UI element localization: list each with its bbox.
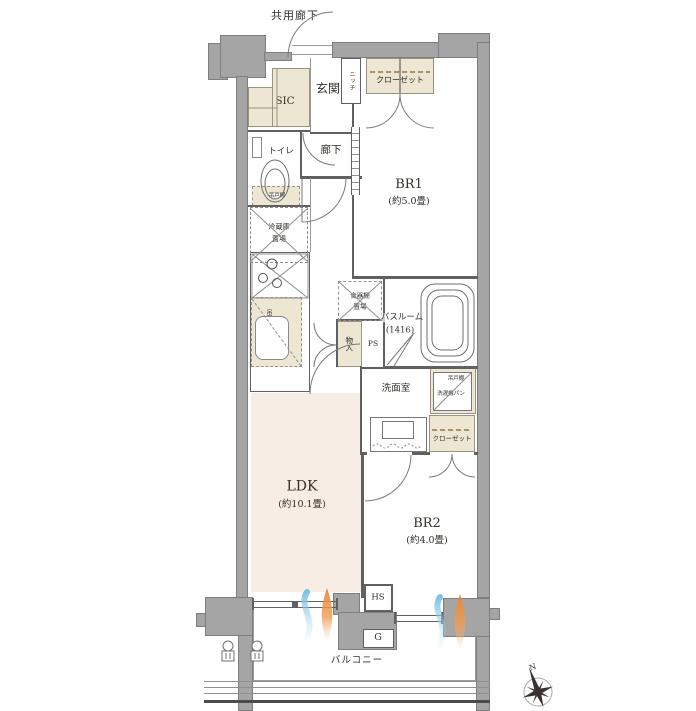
step-entrance <box>310 132 352 134</box>
br2-window-sash-bottom <box>395 621 443 622</box>
balcony-rail-1 <box>204 681 490 682</box>
hallway-label: 廊下 <box>321 145 342 157</box>
br2-window-sash-top <box>395 615 443 616</box>
compass-circle <box>520 674 556 710</box>
toilet-label: トイレ <box>268 147 294 156</box>
ps-label: PS <box>368 340 378 348</box>
toilet-cabinet-label: 吊戸棚 <box>269 193 286 199</box>
wall-bottom-left-arm <box>196 613 206 627</box>
bath-folding-door <box>387 333 414 366</box>
bathroom-name-label: バスルーム <box>381 313 423 322</box>
wall-bottom-left-pillar <box>205 597 253 636</box>
sic-label: SIC <box>275 96 294 108</box>
bathtub-outer <box>421 284 474 362</box>
wall-storage-west <box>336 319 338 367</box>
ldk-window-mullion <box>292 602 298 607</box>
niche-label: ニッチ <box>348 71 354 92</box>
bathtub-mid <box>427 290 468 356</box>
wall-top-left-strip <box>264 52 292 61</box>
dish-cabinet-box <box>338 281 382 321</box>
wall-br2-north-a <box>362 452 367 455</box>
balcony-rail-base <box>204 700 490 703</box>
br2-name-label: BR2 <box>413 517 441 531</box>
wall-br1-south <box>352 276 478 279</box>
wall-br2-north-b <box>412 452 430 455</box>
wall-right <box>477 42 490 598</box>
storage-door-bottom-arc <box>314 345 336 367</box>
balcony-edge-bottom <box>253 680 476 681</box>
br2-window-jamb-left <box>394 612 396 624</box>
wall-bath-west <box>383 279 385 368</box>
br1-size-label: (約5.0畳) <box>388 197 430 207</box>
toilet-shelf <box>252 137 262 158</box>
faucet-body-1 <box>222 651 234 661</box>
balcony-rail-3 <box>204 693 490 694</box>
bathtub-inner <box>432 296 463 350</box>
wall-bottom-right-pillar <box>443 598 490 637</box>
hs-label: HS <box>371 593 384 602</box>
compass-north-label: N <box>528 663 538 674</box>
balcony-rail-2 <box>204 687 490 688</box>
hall-door-arc <box>302 178 346 222</box>
closet-br2-door-right-arc <box>452 454 475 477</box>
compass-needle-ns <box>526 666 546 708</box>
closet-br1-door-right-arc <box>400 94 434 128</box>
wall-washroom-west <box>360 368 362 455</box>
compass-needle-ew <box>522 684 554 701</box>
divider-corridor <box>310 178 311 252</box>
closet-br2-label: クローゼット <box>433 435 472 442</box>
fridge-label-1: 冷蔵庫 <box>269 224 290 232</box>
flame-icon <box>322 588 333 642</box>
wall-left <box>236 76 248 600</box>
dish-label-2: 置場 <box>354 303 367 310</box>
ldk-window-sash-bottom <box>252 607 338 608</box>
floor-plan: ニッチ クローゼット クローゼット 物入 PS 冷蔵庫 置場 食器棚 置場 吊戸… <box>0 0 696 711</box>
bathtub <box>421 284 474 362</box>
compass-diagonals <box>526 680 549 703</box>
br2-door-arc <box>365 455 411 501</box>
g-label: G <box>374 633 382 643</box>
entrance-label: 玄関 <box>316 82 340 95</box>
ldk-name-label: LDK <box>287 479 318 494</box>
br1-sliding-door <box>351 127 360 195</box>
wall-br2-west <box>361 452 364 598</box>
wash-cabinet-label: 吊戸棚 <box>448 376 465 382</box>
wall-br1-west-lower <box>352 195 354 278</box>
wall-br2-north-c <box>474 452 478 455</box>
vanity-mirror <box>382 421 414 439</box>
br2-window-jamb-right <box>441 612 443 624</box>
wall-toilet-east <box>300 130 302 178</box>
closet-br1-label: クローゼット <box>376 77 424 86</box>
wall-bottom-right-arm <box>489 608 500 620</box>
br2-size-label: (約4.0畳) <box>406 536 448 546</box>
sic-floor-step <box>248 87 273 127</box>
water-wave-icon <box>304 592 309 638</box>
dish-label-1: 食器棚 <box>350 292 370 299</box>
fridge-label-2: 置場 <box>272 236 286 244</box>
storage-door-top-arc <box>314 323 336 345</box>
common-corridor-label: 共用廊下 <box>271 10 319 22</box>
balcony-edge-left <box>253 610 254 681</box>
divider-sic-entrance <box>310 58 311 132</box>
balcony-edge-right <box>475 632 476 681</box>
storage-label: 物入 <box>345 337 353 352</box>
br1-name-label: BR1 <box>395 178 423 192</box>
bathroom-size-label: (1416) <box>386 326 414 335</box>
washroom-label: 洗面室 <box>382 384 411 394</box>
entrance-sill-1 <box>292 45 332 46</box>
ldk-window-jamb-right <box>336 598 338 610</box>
ldk-window-jamb-left <box>252 598 254 610</box>
entrance-sill-2 <box>292 54 332 55</box>
faucet-icon-1 <box>223 641 233 651</box>
wall-top-left-pillar <box>220 35 266 78</box>
ldk-size-label: (約10.1畳) <box>278 500 326 510</box>
kitchen-sink <box>255 316 289 360</box>
closet-br1-door-left-arc <box>366 94 400 128</box>
closet-br2-door-left-arc <box>429 454 452 477</box>
balcony-label: バルコニー <box>331 656 383 666</box>
washer-pan-label: 洗濯機パン <box>437 391 465 397</box>
